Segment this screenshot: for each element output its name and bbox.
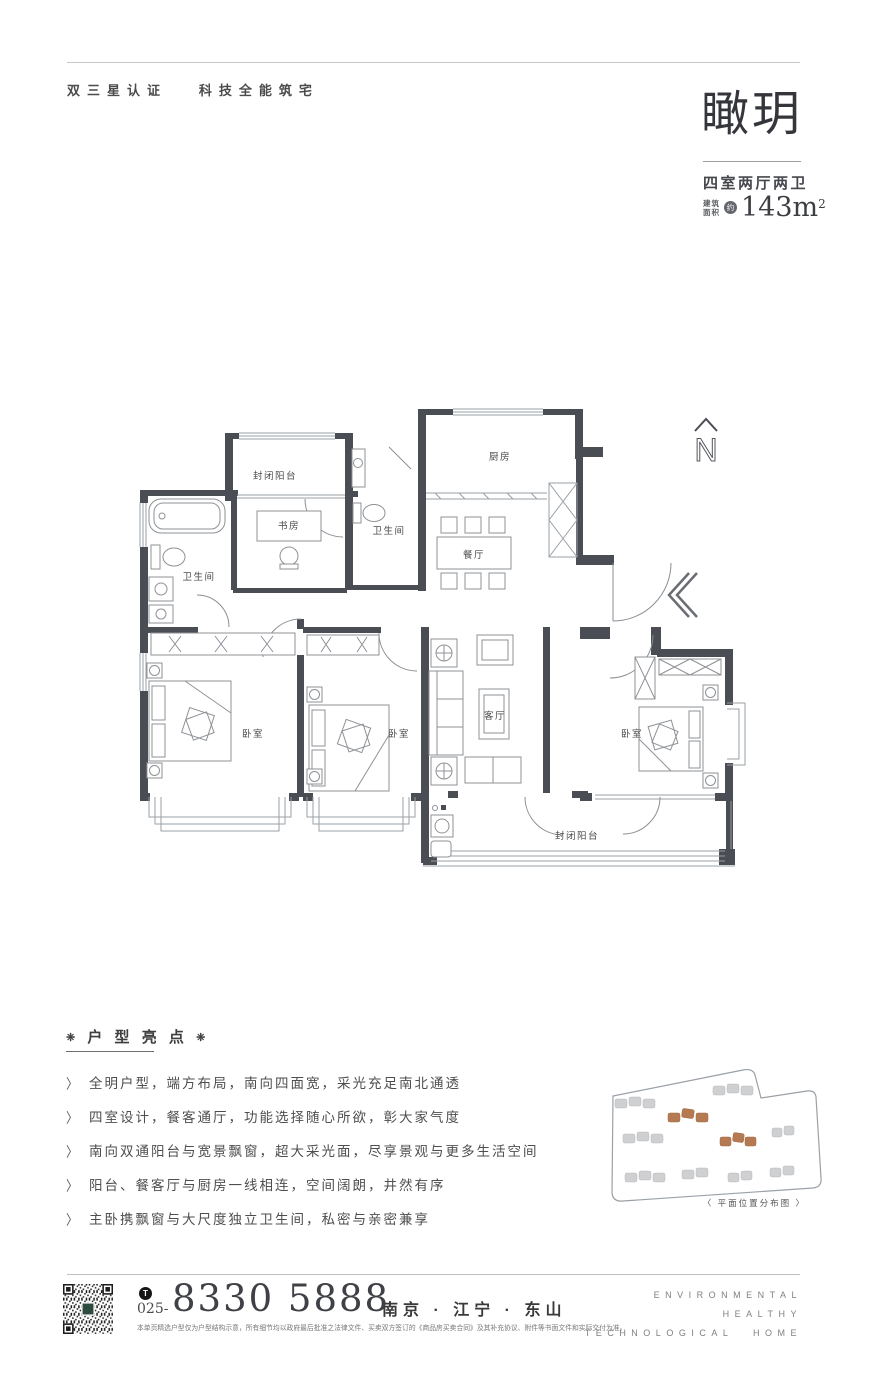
flyer-page: 双三星认证 科技全能筑宅 瞰玥 四室两厅两卫 建筑 面积 约 143m2	[0, 0, 869, 1400]
layout-type: 四室两厅两卫	[703, 172, 808, 193]
slogan-line: ENVIRONMENTAL	[585, 1286, 802, 1305]
room-label-bathroom-left: 卫生间	[182, 571, 215, 583]
room-label-bedroom-left: 卧室	[242, 728, 264, 740]
area-label: 建筑 面积	[703, 199, 720, 217]
bullet-chevron-icon: 〉	[66, 1212, 80, 1228]
floorplan-drawing: N 封闭阳台 书房 卫生间 卫生间 厨房 餐厅 卧室 卧室 客厅 卧室 封闭阳台	[85, 405, 765, 905]
slogan-line: TECHNOLOGICAL HOME	[585, 1324, 802, 1343]
bullet-chevron-icon: 〉	[66, 1178, 80, 1194]
footer-divider	[67, 1274, 800, 1275]
highlight-text: 四室设计，餐客通厅，功能选择随心所欲，彰大家气度	[89, 1111, 461, 1125]
title-divider	[703, 161, 801, 162]
room-label-balcony-bottom: 封闭阳台	[555, 830, 599, 842]
room-label-bathroom-middle: 卫生间	[372, 525, 405, 537]
highlights-underline	[66, 1051, 154, 1052]
project-title: 瞰玥	[701, 74, 803, 144]
project-location: 南京 · 江宁 · 东山	[382, 1296, 566, 1320]
approx-mark: 约	[724, 201, 737, 214]
qr-code	[63, 1284, 113, 1334]
highlight-item: 〉 南向双通阳台与宽景飘窗，超大采光面，尽享景观与更多生活空间	[66, 1145, 606, 1159]
bullet-chevron-icon: 〉	[66, 1110, 80, 1126]
room-label-dining: 餐厅	[463, 549, 485, 561]
highlights-list: 〉 全明户型，端方布局，南向四面宽，采光充足南北通透 〉 四室设计，餐客通厅，功…	[66, 1077, 606, 1247]
highlight-item: 〉 主卧携飘窗与大尺度独立卫生间，私密与亲密兼享	[66, 1213, 606, 1227]
phone-number: 8330 5888	[172, 1280, 390, 1317]
phone-icon: T	[139, 1287, 152, 1300]
highlight-text: 主卧携飘窗与大尺度独立卫生间，私密与亲密兼享	[89, 1213, 430, 1227]
legal-disclaimer: 本单页精选户型仅为户型结构示意，所有细节均以政府最后批准之法律文件、买卖双方签订…	[137, 1322, 567, 1332]
brand-slogan: ENVIRONMENTAL HEALTHY TECHNOLOGICAL HOME	[585, 1286, 802, 1343]
highlight-text: 全明户型，端方布局，南向四面宽，采光充足南北通透	[89, 1077, 461, 1091]
highlight-item: 〉 四室设计，餐客通厅，功能选择随心所欲，彰大家气度	[66, 1111, 606, 1125]
area-superscript: 2	[818, 197, 826, 211]
ornament-icon: ❈	[196, 1032, 209, 1044]
area-row: 建筑 面积 约 143m2	[703, 194, 826, 221]
highlight-item: 〉 全明户型，端方布局，南向四面宽，采光充足南北通透	[66, 1077, 606, 1091]
bullet-chevron-icon: 〉	[66, 1076, 80, 1092]
room-label-kitchen: 厨房	[489, 451, 511, 463]
phone-area-code: 025-	[137, 1301, 168, 1317]
room-label-study: 书房	[278, 520, 300, 532]
north-compass-icon: N	[694, 419, 717, 468]
room-label-living: 客厅	[484, 710, 506, 722]
site-location-map	[595, 1060, 825, 1210]
room-label-bedroom-middle: 卧室	[388, 728, 410, 740]
room-label-balcony-top: 封闭阳台	[253, 470, 297, 482]
highlight-text: 阳台、餐客厅与厨房一线相连，空间阔朗，井然有序	[89, 1179, 446, 1193]
compass-letter: N	[694, 432, 717, 468]
highlight-item: 〉 阳台、餐客厅与厨房一线相连，空间阔朗，井然有序	[66, 1179, 606, 1193]
room-label-bedroom-right: 卧室	[621, 728, 643, 740]
qr-center-logo	[82, 1303, 94, 1315]
entry-direction-icon	[669, 573, 697, 617]
bullet-chevron-icon: 〉	[66, 1144, 80, 1160]
ornament-icon: ❈	[66, 1032, 79, 1044]
site-map-caption: 〈 平面位置分布图 〉	[703, 1197, 806, 1209]
slogan-line: HEALTHY	[585, 1305, 802, 1324]
highlight-text: 南向双通阳台与宽景飘窗，超大采光面，尽享景观与更多生活空间	[89, 1145, 539, 1159]
top-divider	[67, 62, 800, 63]
highlights-title: ❈ 户 型 亮 点 ❈	[66, 1026, 209, 1047]
area-value: 143m2	[741, 194, 826, 221]
certification-tagline: 双三星认证 科技全能筑宅	[67, 80, 319, 99]
